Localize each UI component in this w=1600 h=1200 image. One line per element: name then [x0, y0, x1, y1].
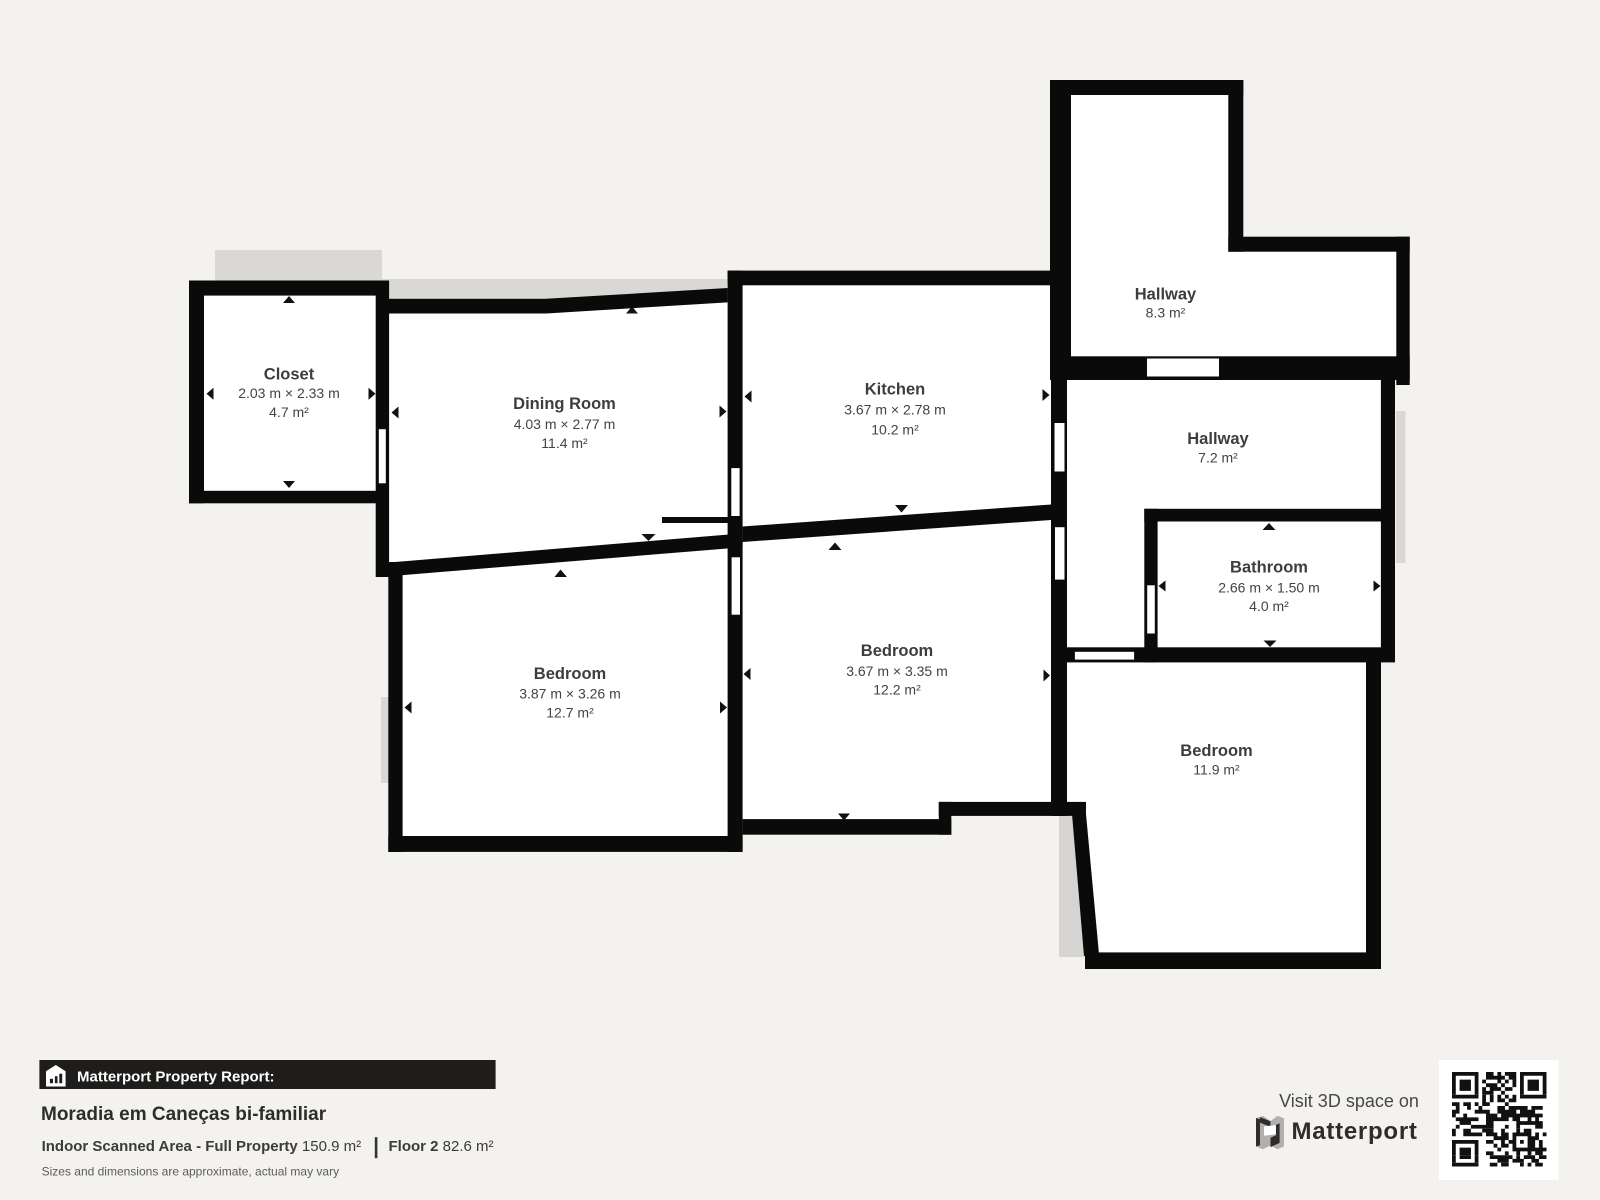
svg-text:4.03 m × 2.77 m: 4.03 m × 2.77 m [514, 416, 616, 432]
svg-text:11.4 m²: 11.4 m² [541, 435, 588, 451]
svg-text:Sizes and dimensions are appro: Sizes and dimensions are approximate, ac… [42, 1165, 339, 1179]
svg-text:2.66 m × 1.50 m: 2.66 m × 1.50 m [1218, 580, 1320, 596]
svg-text:Matterport Property Report:: Matterport Property Report: [77, 1069, 275, 1086]
svg-text:Kitchen: Kitchen [865, 381, 926, 399]
svg-text:3.67 m × 3.35 m: 3.67 m × 3.35 m [846, 663, 948, 679]
svg-text:4.7 m²: 4.7 m² [269, 404, 309, 420]
svg-text:Bedroom: Bedroom [861, 642, 933, 660]
svg-text:11.9 m²: 11.9 m² [1193, 762, 1240, 778]
svg-text:Floor 2 82.6 m²: Floor 2 82.6 m² [389, 1138, 494, 1155]
svg-text:4.0 m²: 4.0 m² [1249, 598, 1289, 614]
svg-text:Hallway: Hallway [1187, 430, 1249, 448]
svg-text:12.2 m²: 12.2 m² [873, 682, 921, 698]
svg-text:Bathroom: Bathroom [1230, 559, 1308, 577]
svg-text:3.87 m × 3.26 m: 3.87 m × 3.26 m [519, 686, 621, 702]
svg-text:Hallway: Hallway [1135, 286, 1197, 304]
svg-text:7.2 m²: 7.2 m² [1198, 450, 1238, 466]
svg-text:Bedroom: Bedroom [534, 665, 606, 683]
svg-text:8.3 m²: 8.3 m² [1146, 305, 1186, 321]
svg-text:Bedroom: Bedroom [1180, 742, 1252, 760]
svg-text:Dining Room: Dining Room [513, 395, 616, 413]
svg-text:2.03 m × 2.33 m: 2.03 m × 2.33 m [238, 385, 340, 401]
svg-text:Closet: Closet [264, 366, 315, 384]
svg-text:10.2 m²: 10.2 m² [871, 422, 919, 438]
svg-text:Indoor Scanned Area - Full Pro: Indoor Scanned Area - Full Property 150.… [42, 1138, 362, 1155]
svg-text:Matterport: Matterport [1292, 1118, 1418, 1145]
svg-text:Moradia em Caneças bi-familiar: Moradia em Caneças bi-familiar [41, 1104, 327, 1125]
svg-text:3.67 m × 2.78 m: 3.67 m × 2.78 m [844, 402, 946, 418]
svg-text:12.7 m²: 12.7 m² [546, 705, 594, 721]
svg-text:Visit 3D space on: Visit 3D space on [1279, 1091, 1419, 1111]
